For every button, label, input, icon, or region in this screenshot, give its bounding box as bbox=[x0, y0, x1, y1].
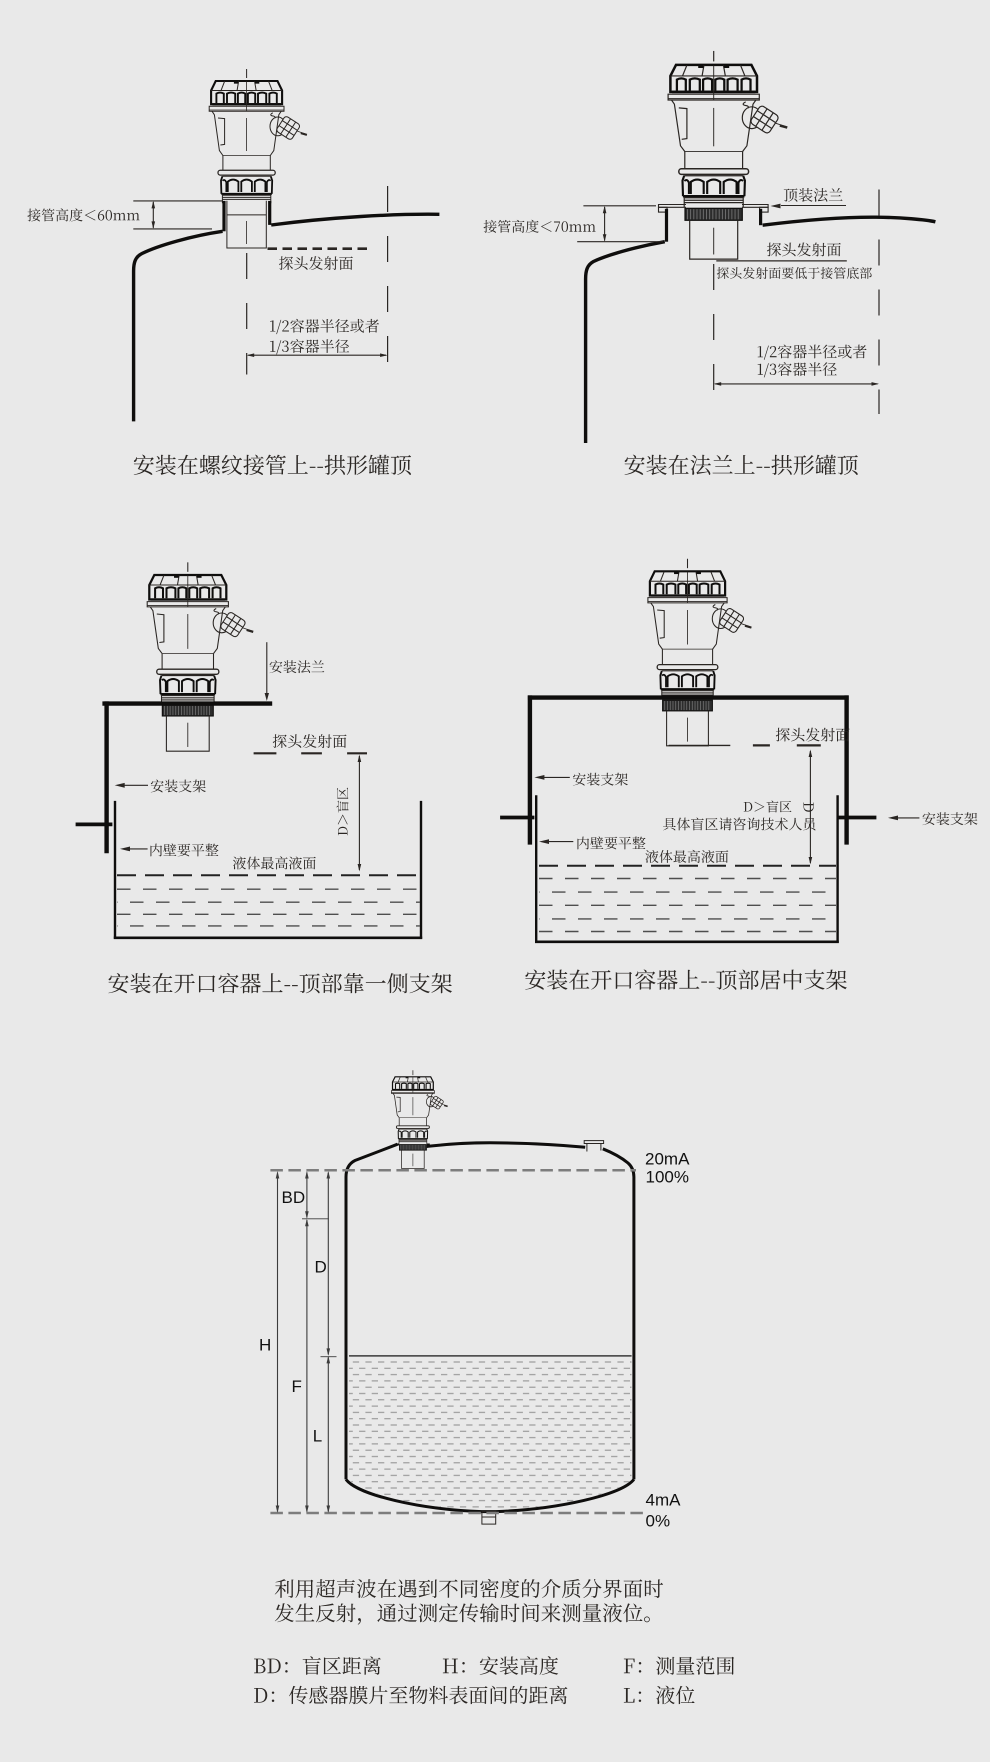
svg-text:0%: 0% bbox=[646, 1512, 671, 1531]
svg-text:4mA: 4mA bbox=[646, 1491, 682, 1510]
svg-text:20mA: 20mA bbox=[645, 1150, 690, 1169]
svg-text:100%: 100% bbox=[646, 1167, 689, 1186]
svg-text:F: F bbox=[292, 1377, 302, 1396]
svg-text:BD: BD bbox=[282, 1188, 306, 1207]
svg-text:D: D bbox=[315, 1257, 327, 1276]
svg-text:L: L bbox=[313, 1426, 322, 1445]
svg-text:H: H bbox=[259, 1335, 271, 1354]
